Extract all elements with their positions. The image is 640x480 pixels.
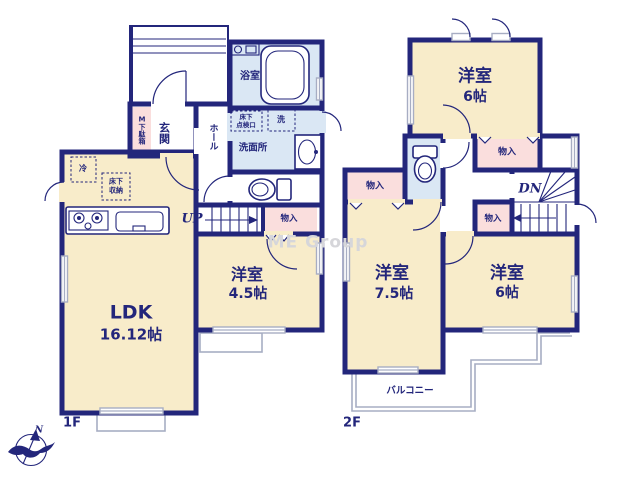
room-label-bath: 浴室	[240, 72, 260, 82]
label-closet-2f-mid: 物入	[484, 215, 501, 224]
label-floor-storage-1: 床下	[109, 179, 123, 186]
entrance-door-arc	[153, 71, 186, 104]
stairs-up-icon	[205, 207, 258, 232]
room-area-bedroom75: 7.5帖	[375, 287, 414, 301]
toilet-icon-1f	[249, 179, 291, 200]
watermark: ME Group	[268, 235, 369, 252]
label-fridge: 冷	[79, 165, 87, 173]
label-closet-1f: 物入	[280, 215, 297, 224]
porch-steps	[132, 39, 226, 53]
label-balcony: バルコニー	[386, 386, 433, 396]
toilet-icon-2f	[413, 146, 437, 182]
label-floor-hatch-2: 点検口	[236, 122, 256, 129]
floor2-label: 2F	[343, 417, 361, 430]
room-area-bedroom6s: 6帖	[495, 286, 519, 300]
room-area-ldk: 16.12帖	[100, 328, 162, 343]
room-label-washroom: 洗面所	[239, 143, 268, 153]
bedroom6n-floor	[410, 40, 540, 136]
casement-window	[492, 19, 510, 41]
room-label-entrance: 玄関	[159, 122, 170, 144]
washbasin-icon	[295, 135, 321, 169]
label-stairs-up: UP	[181, 213, 202, 226]
window	[572, 276, 578, 312]
floor1-label: 1F	[63, 417, 81, 430]
ldk-floor	[62, 152, 196, 413]
floorplan-canvas: LDK 16.12帖 洋室 4.5帖 玄関 ホール 浴室 洗面所 M下駄箱 冷 …	[0, 0, 640, 480]
window	[62, 256, 68, 302]
window	[213, 327, 285, 333]
stairs-down-icon	[512, 171, 577, 232]
window	[100, 408, 163, 414]
room-label-ldk: LDK	[110, 304, 153, 323]
casement-window	[452, 19, 470, 41]
label-stairs-down: DN	[518, 183, 541, 196]
window	[317, 78, 323, 100]
window	[572, 137, 578, 168]
porch-wall	[130, 26, 228, 104]
label-shoe-box: M下駄箱	[138, 116, 145, 145]
room-area-bedroom45: 4.5帖	[229, 287, 268, 301]
window	[408, 76, 414, 124]
window	[378, 367, 418, 373]
compass-icon	[8, 429, 55, 466]
room-area-bedroom6n: 6帖	[463, 90, 487, 104]
window	[483, 327, 537, 333]
compass-north-label: N	[35, 427, 43, 436]
label-closet-2f-west: 物入	[366, 183, 384, 192]
room-label-bedroom45: 洋室	[231, 267, 263, 283]
room-label-bedroom6s: 洋室	[490, 266, 524, 283]
room-label-bedroom6n: 洋室	[458, 69, 492, 86]
toilet1f-door-arc	[204, 176, 230, 202]
label-washer: 洗	[277, 116, 285, 124]
room-label-bedroom75: 洋室	[375, 266, 409, 283]
room-label-hall: ホール	[208, 124, 217, 151]
label-closet-2f-north: 物入	[498, 149, 516, 158]
label-floor-hatch-1: 床下	[240, 114, 253, 121]
kitchen-counter-icon	[66, 207, 169, 234]
bathtub-icon	[261, 46, 309, 104]
label-floor-storage-2: 収納	[109, 188, 123, 195]
